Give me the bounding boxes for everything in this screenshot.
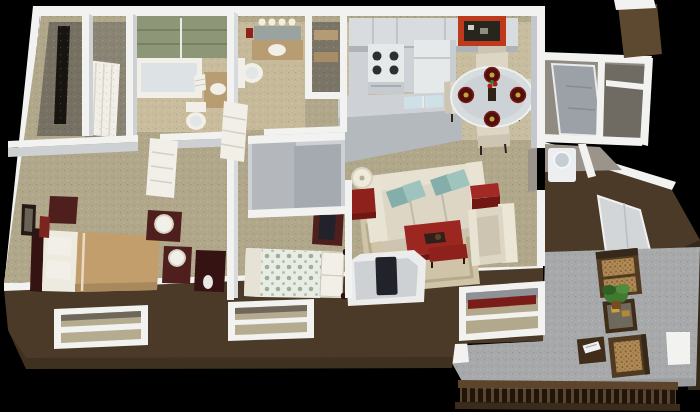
bed2 bbox=[244, 248, 349, 299]
wall-face bbox=[89, 14, 93, 136]
vanity-light bbox=[279, 19, 286, 26]
side-table-lamp bbox=[350, 168, 376, 220]
vanity-light bbox=[259, 19, 266, 26]
range bbox=[368, 44, 404, 94]
double-sink bbox=[425, 95, 443, 108]
red-towel bbox=[246, 28, 253, 38]
railing-balusters bbox=[460, 388, 676, 404]
sliding-door-panel bbox=[294, 144, 341, 214]
bed1-pillow bbox=[46, 260, 71, 280]
hall-to-patio-floor bbox=[528, 148, 537, 192]
polka-dot-comforter bbox=[260, 249, 322, 298]
upper-exterior-wall bbox=[618, 4, 662, 58]
wall-east bbox=[537, 6, 545, 148]
media-niche bbox=[346, 250, 426, 306]
patio-side-table bbox=[577, 337, 606, 365]
wall bbox=[305, 12, 312, 96]
counter-mid bbox=[404, 48, 414, 92]
dining-wall-art bbox=[458, 16, 506, 46]
place-setting bbox=[459, 88, 474, 103]
sliding-door-panel bbox=[252, 138, 296, 213]
bed2-pillow bbox=[321, 252, 344, 276]
red-vase bbox=[39, 216, 50, 238]
patio-post-east bbox=[666, 332, 690, 365]
counter-west bbox=[349, 52, 368, 96]
bed1 bbox=[30, 228, 160, 292]
linen-shelf bbox=[314, 30, 338, 40]
bedroom1-wall-art bbox=[21, 204, 36, 236]
bath1-toilet bbox=[186, 102, 206, 130]
wicker-chair bbox=[608, 334, 650, 378]
place-setting bbox=[485, 112, 500, 127]
window-living-patio bbox=[459, 281, 545, 341]
north-wall-cap bbox=[33, 6, 545, 16]
window-bedroom2 bbox=[228, 299, 314, 341]
bed1-pillow bbox=[47, 236, 72, 256]
washer bbox=[548, 148, 576, 182]
floorplan-canvas bbox=[0, 0, 700, 412]
wall-face bbox=[133, 14, 137, 138]
linen-front-wall bbox=[305, 92, 343, 99]
bedroom1-open-door bbox=[146, 138, 178, 198]
bed1-lamp bbox=[155, 215, 173, 233]
vanity-light bbox=[269, 19, 276, 26]
coat-closet-floor bbox=[600, 64, 645, 140]
wall-bed2-east bbox=[345, 180, 352, 298]
bed1-headboard bbox=[30, 228, 44, 292]
white-figurine bbox=[203, 275, 213, 289]
wall bbox=[126, 14, 133, 140]
front-door bbox=[552, 64, 602, 136]
towels bbox=[194, 74, 206, 92]
double-sink bbox=[404, 96, 422, 109]
bathroom-open-door bbox=[220, 101, 248, 162]
bed1-dresser bbox=[48, 196, 78, 224]
window-bedroom1 bbox=[54, 305, 148, 349]
place-setting bbox=[511, 88, 526, 103]
bed2-pillow bbox=[320, 275, 343, 297]
tv bbox=[375, 257, 397, 296]
wall-east-lower bbox=[537, 190, 545, 266]
vanity-light bbox=[289, 19, 296, 26]
wall bbox=[340, 12, 347, 132]
armchair bbox=[468, 203, 518, 266]
bathtub bbox=[136, 58, 202, 98]
lamp-east bbox=[169, 250, 185, 266]
floorplan-render bbox=[0, 0, 700, 412]
linen-shelf bbox=[314, 52, 338, 62]
bedroom2-sliding-closet bbox=[248, 132, 345, 218]
wall-face bbox=[531, 16, 537, 148]
wall bbox=[82, 14, 89, 136]
